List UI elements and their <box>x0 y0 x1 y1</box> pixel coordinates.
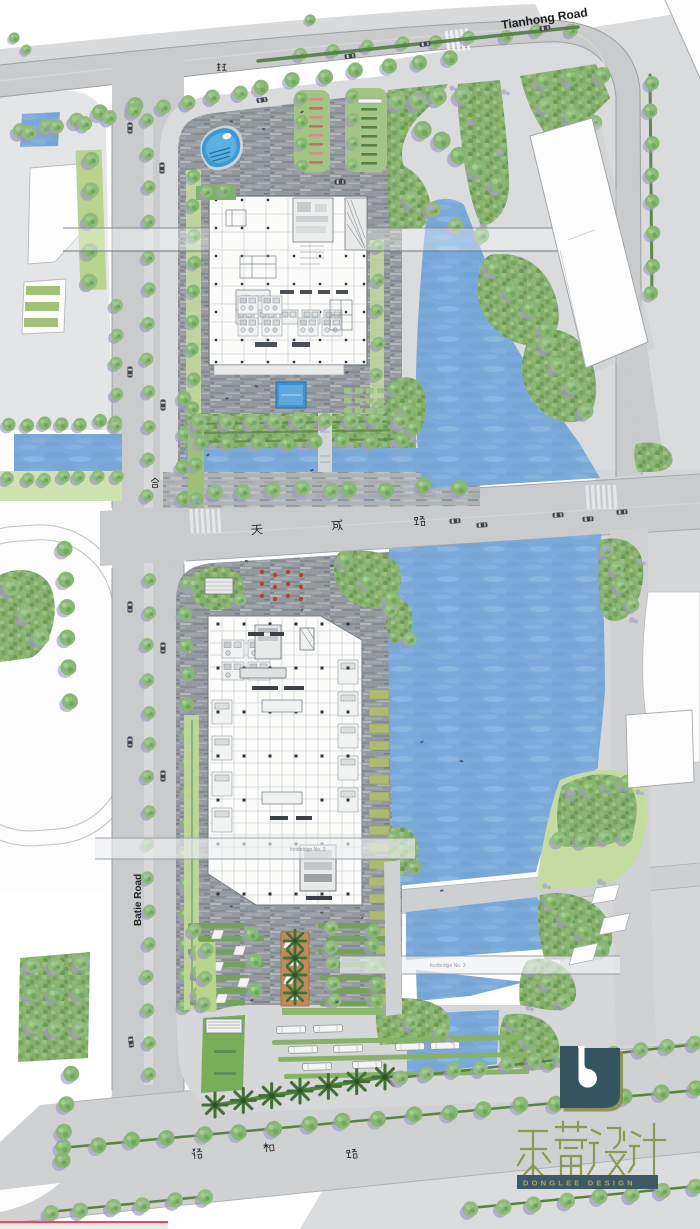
svg-text:DONGLEE DESIGN: DONGLEE DESIGN <box>523 1179 636 1188</box>
svg-text:footbridge No. 3: footbridge No. 3 <box>430 963 466 969</box>
svg-text:Batie Road: Batie Road <box>133 874 144 926</box>
svg-text:footbridge No. 2: footbridge No. 2 <box>290 847 326 853</box>
